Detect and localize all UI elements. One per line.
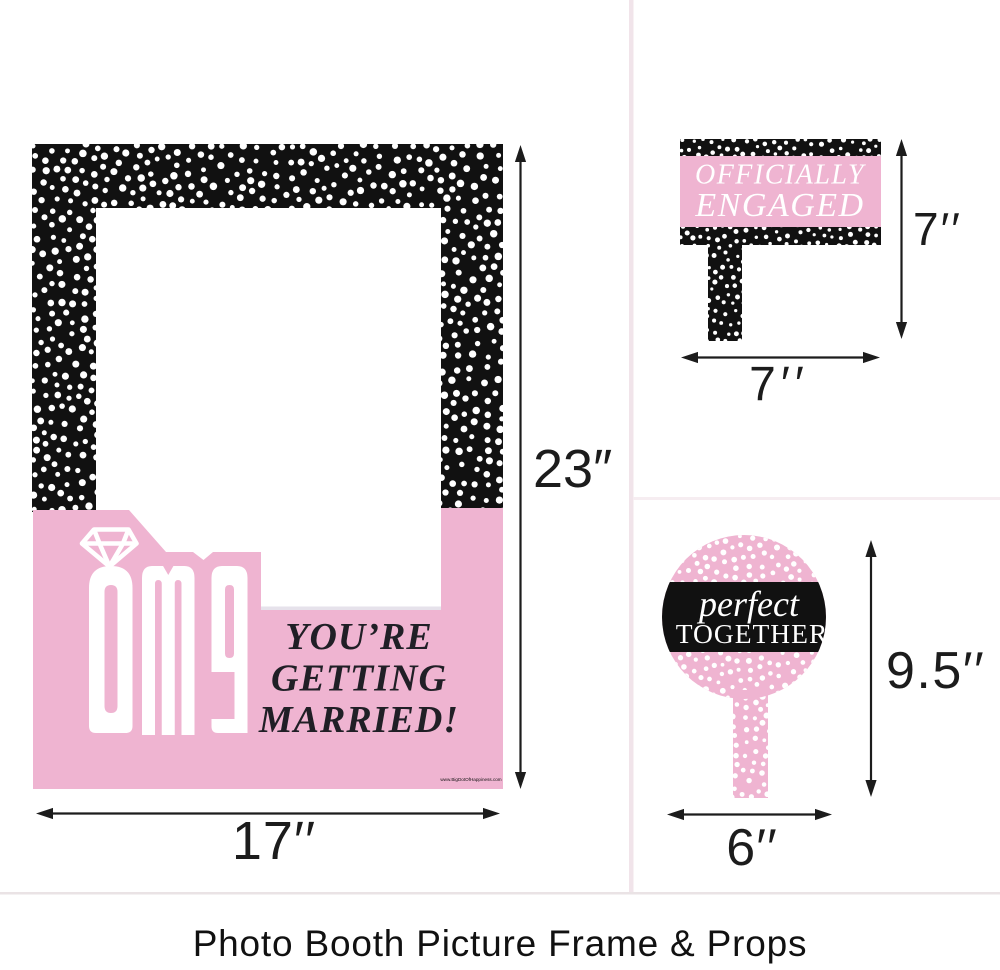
svg-text:www.BigDotOfHappiness.com: www.BigDotOfHappiness.com bbox=[440, 777, 501, 782]
svg-text:23″: 23″ bbox=[533, 439, 612, 499]
svg-text:9.5′′: 9.5′′ bbox=[886, 642, 985, 700]
svg-text:6′′: 6′′ bbox=[726, 819, 777, 877]
svg-text:Photo Booth Picture Frame & Pr: Photo Booth Picture Frame & Props bbox=[193, 923, 808, 964]
svg-text:OFFICIALLY: OFFICIALLY bbox=[695, 160, 867, 191]
svg-text:GETTING: GETTING bbox=[271, 658, 447, 700]
svg-text:YOU’RE: YOU’RE bbox=[285, 616, 432, 658]
svg-text:MARRIED!: MARRIED! bbox=[258, 699, 459, 741]
svg-text:TOGETHER: TOGETHER bbox=[676, 618, 829, 649]
svg-text:ENGAGED: ENGAGED bbox=[694, 187, 864, 224]
svg-text:7′′: 7′′ bbox=[749, 358, 809, 411]
svg-text:7′′: 7′′ bbox=[913, 203, 962, 255]
svg-text:17′′: 17′′ bbox=[232, 811, 316, 871]
